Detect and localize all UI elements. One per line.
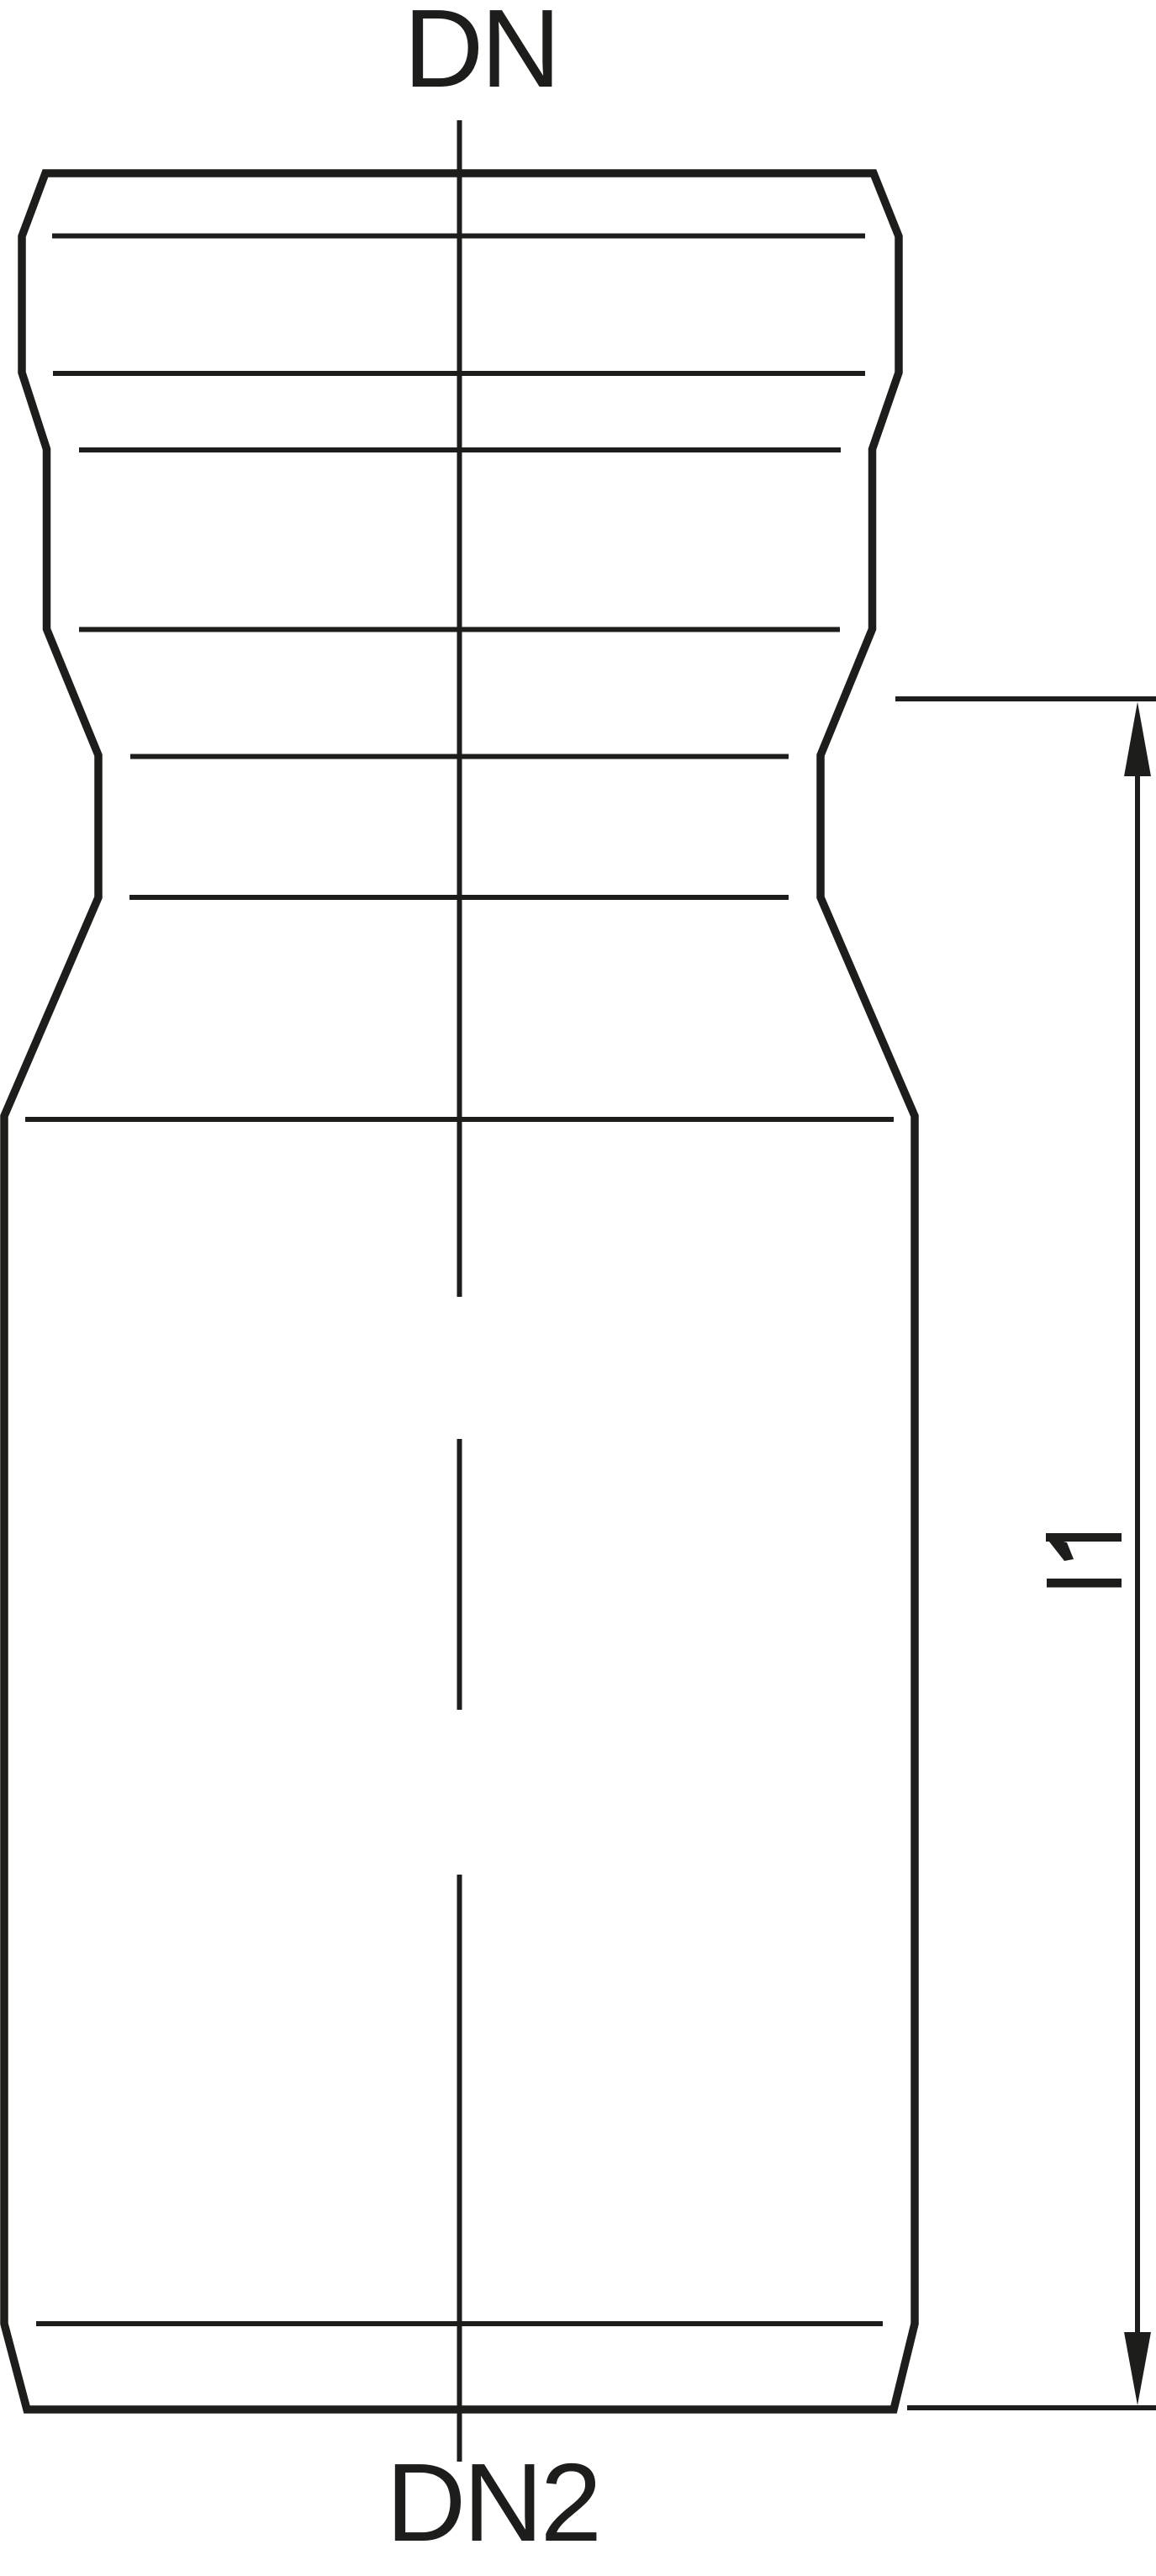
svg-text:DN: DN [404,0,558,110]
svg-text:DN2: DN2 [386,2441,599,2564]
